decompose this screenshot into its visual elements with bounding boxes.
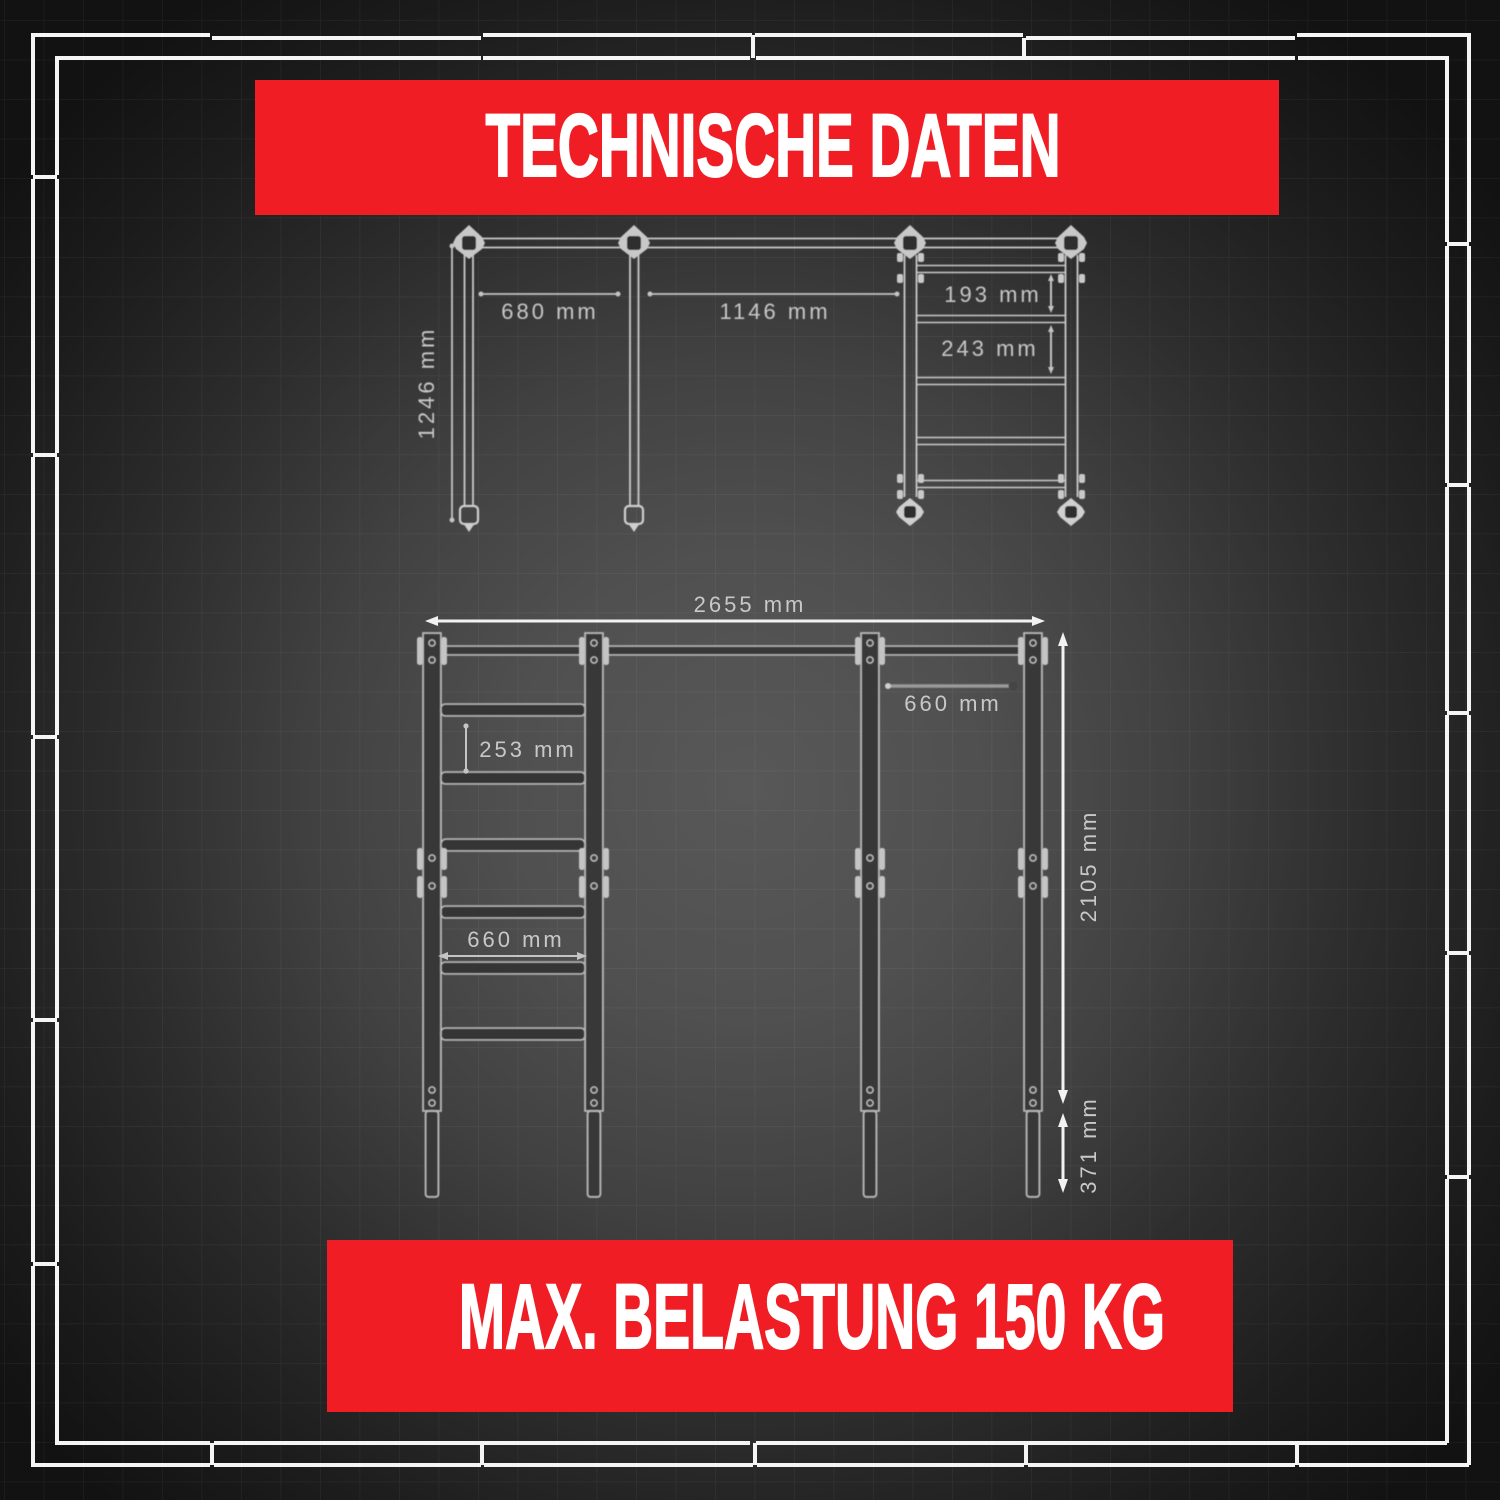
svg-text:371 mm: 371 mm [1076, 1096, 1101, 1193]
svg-text:2655 mm: 2655 mm [694, 592, 807, 617]
svg-text:MAX. BELASTUNG 150 KG: MAX. BELASTUNG 150 KG [459, 1266, 1165, 1369]
svg-text:680 mm: 680 mm [501, 299, 598, 324]
svg-text:1146 mm: 1146 mm [719, 299, 830, 324]
svg-text:660 mm: 660 mm [467, 927, 564, 952]
svg-text:1246 mm: 1246 mm [414, 327, 439, 440]
svg-text:193 mm: 193 mm [944, 282, 1041, 307]
svg-text:243 mm: 243 mm [941, 336, 1038, 361]
svg-text:TECHNISCHE DATEN: TECHNISCHE DATEN [486, 95, 1061, 195]
svg-text:253 mm: 253 mm [479, 737, 576, 762]
svg-text:660 mm: 660 mm [904, 691, 1001, 716]
svg-text:2105 mm: 2105 mm [1076, 810, 1101, 923]
